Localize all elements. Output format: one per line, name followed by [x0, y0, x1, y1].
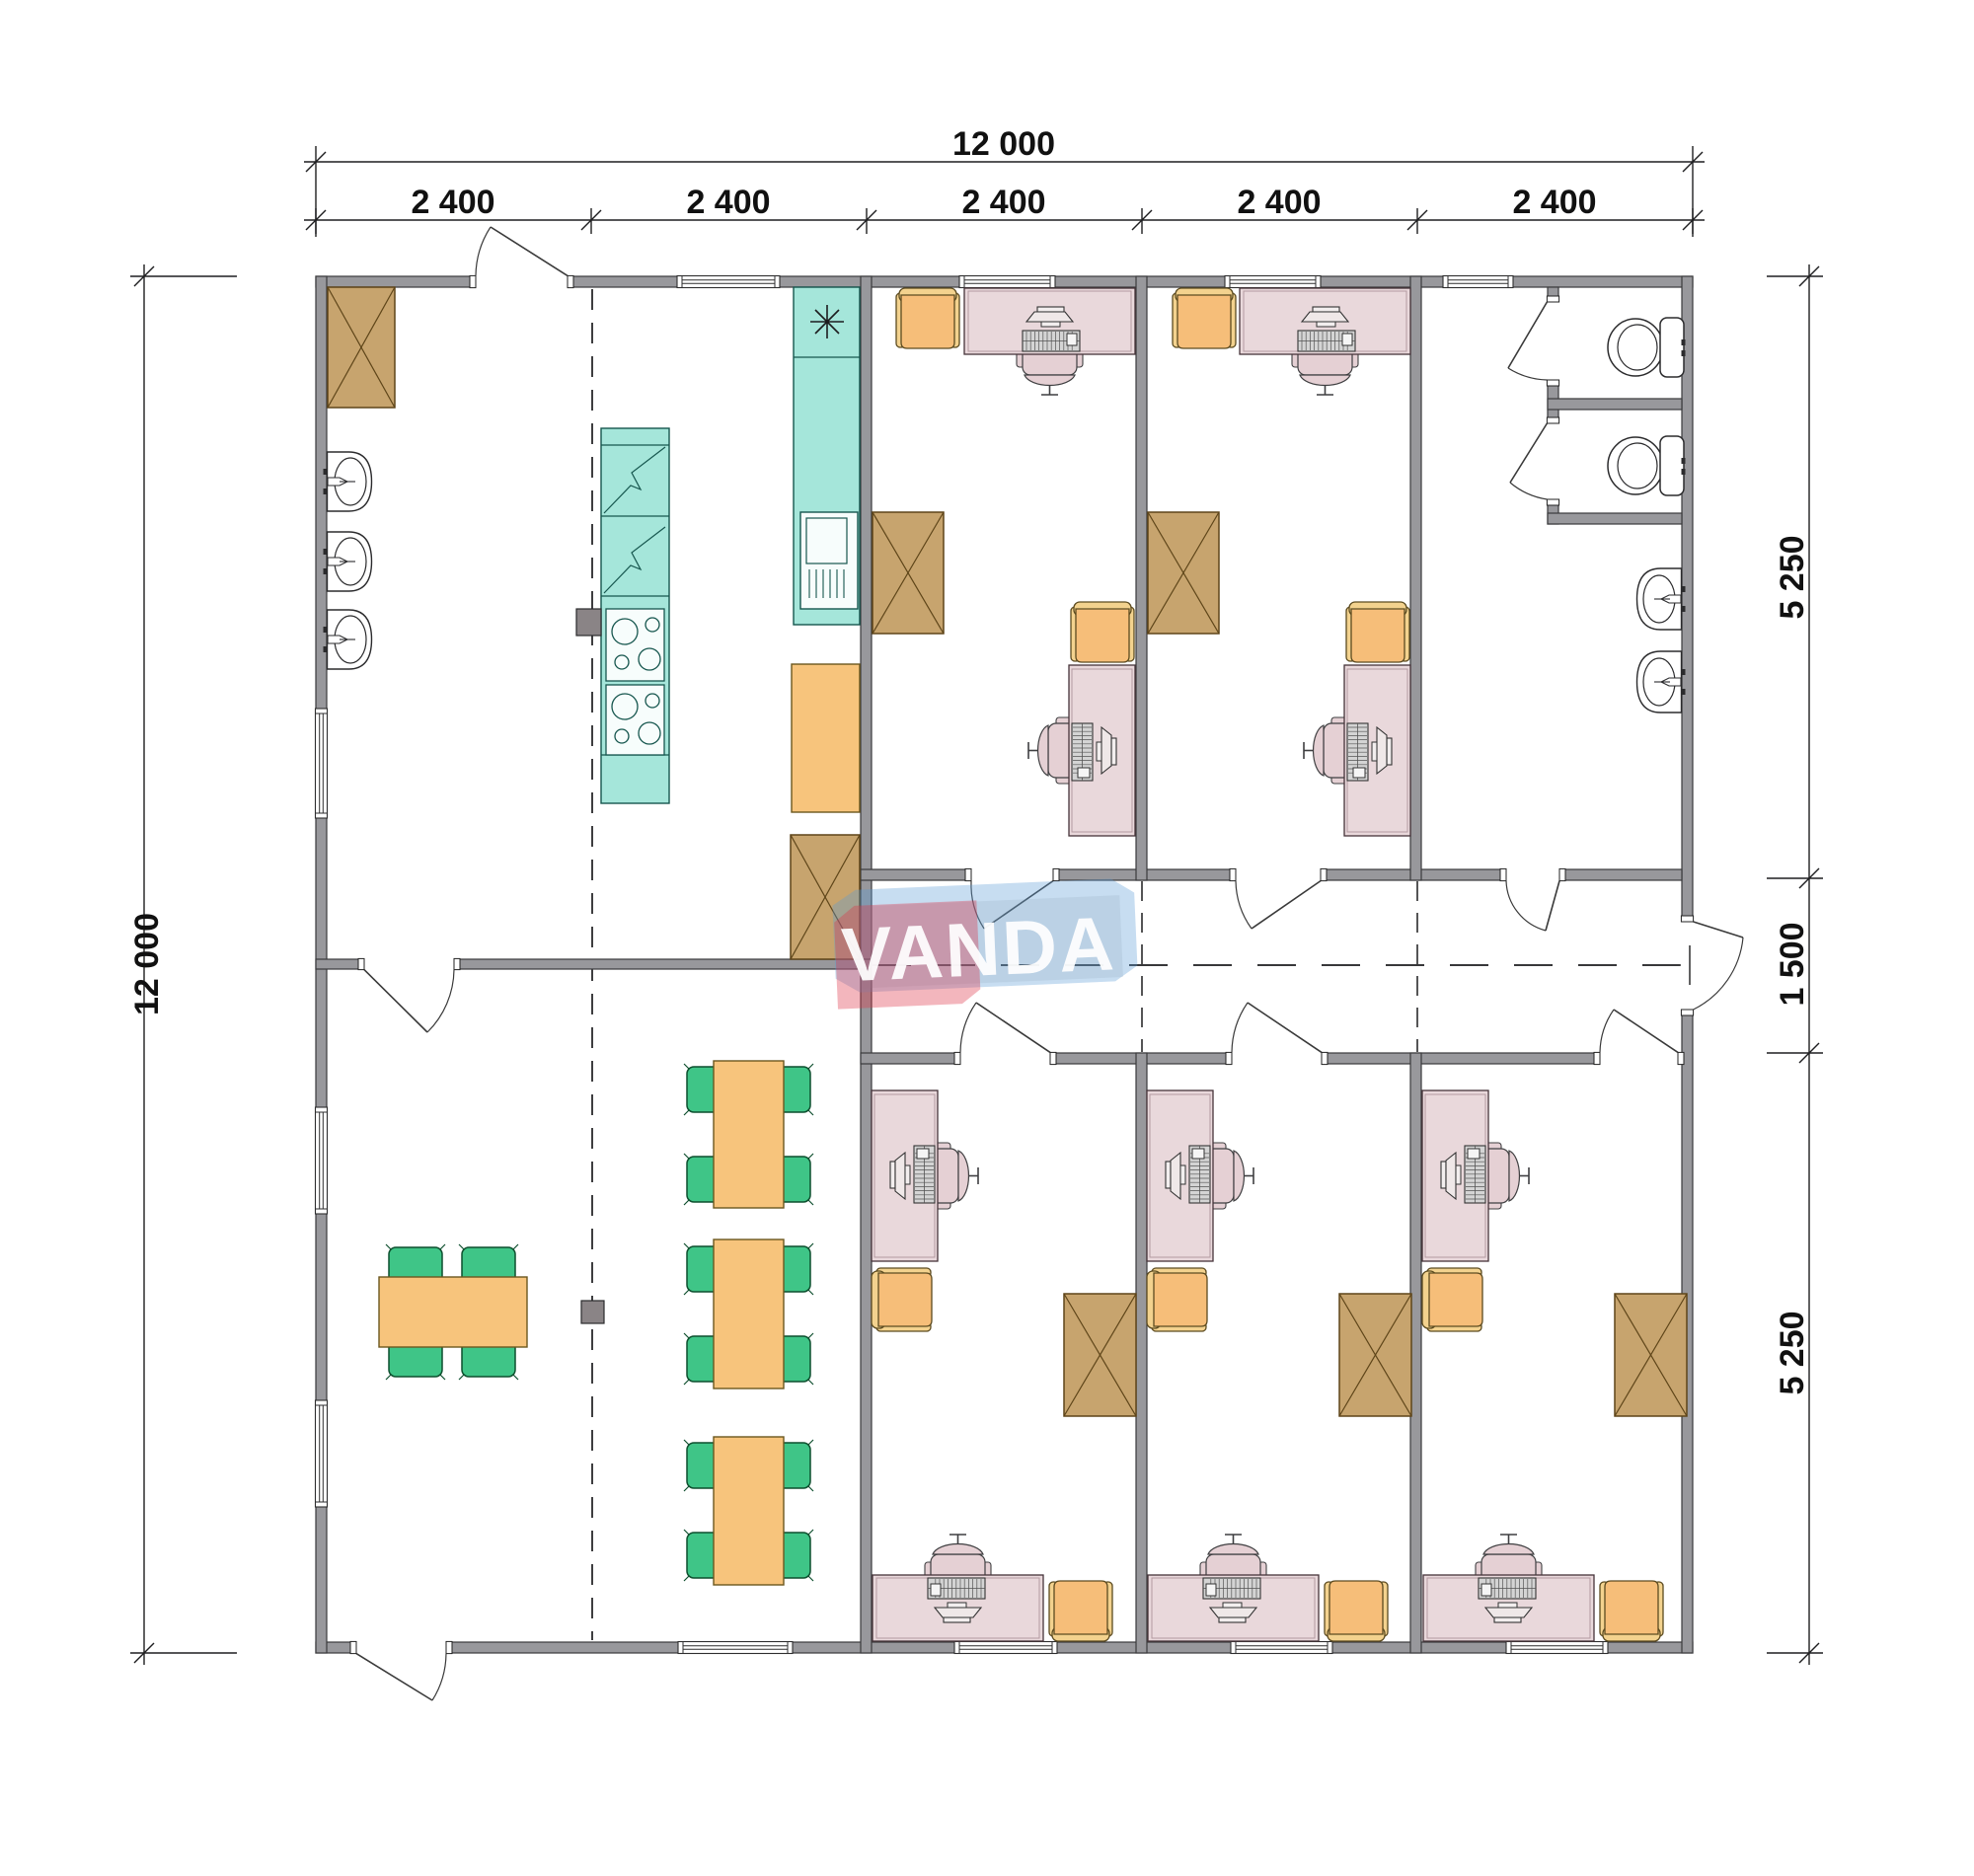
svg-text:5 250: 5 250	[1774, 1311, 1811, 1394]
svg-text:12 000: 12 000	[128, 913, 166, 1015]
svg-text:2 400: 2 400	[411, 184, 494, 221]
svg-text:12 000: 12 000	[952, 125, 1055, 163]
svg-text:5 250: 5 250	[1774, 535, 1811, 619]
svg-text:2 400: 2 400	[1237, 184, 1321, 221]
svg-text:2 400: 2 400	[686, 184, 770, 221]
svg-text:VANDA: VANDA	[840, 901, 1118, 998]
svg-text:1 500: 1 500	[1774, 922, 1811, 1006]
svg-text:2 400: 2 400	[961, 184, 1045, 221]
svg-text:2 400: 2 400	[1512, 184, 1596, 221]
